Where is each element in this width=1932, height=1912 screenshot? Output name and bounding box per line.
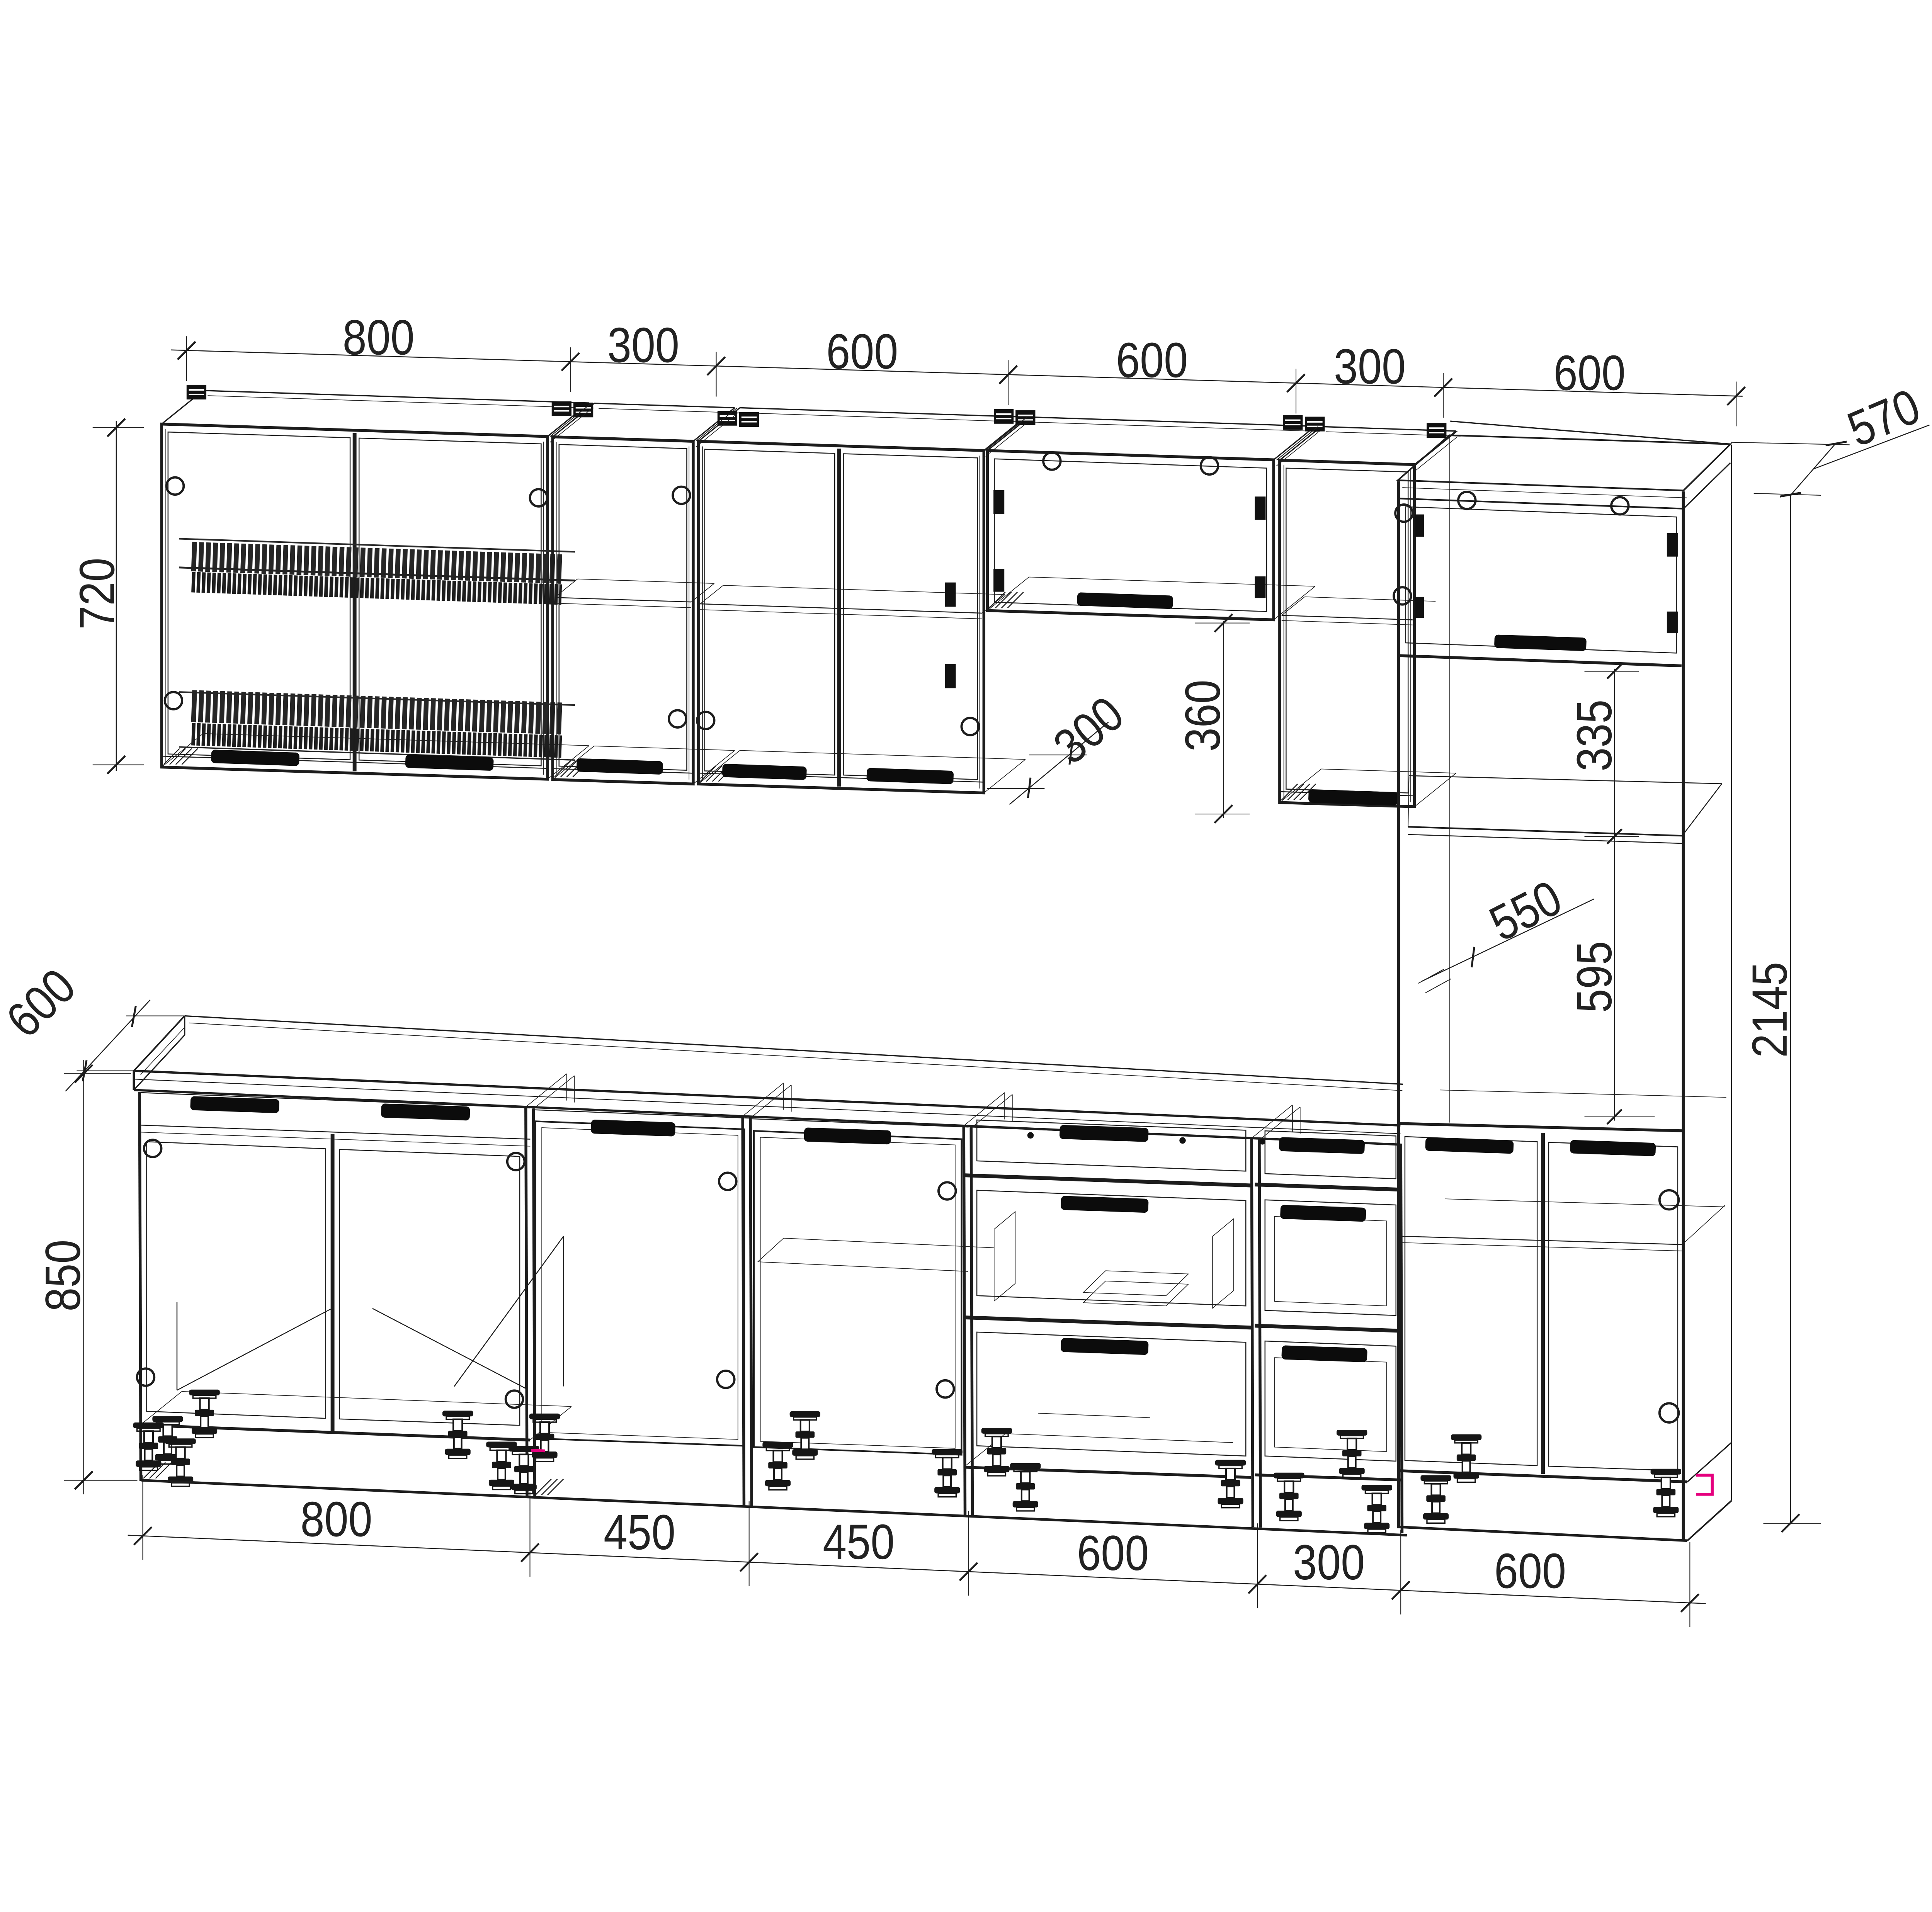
svg-text:800: 800 — [343, 310, 415, 365]
svg-text:600: 600 — [1494, 1543, 1566, 1599]
svg-text:800: 800 — [301, 1492, 372, 1547]
svg-text:450: 450 — [604, 1505, 675, 1560]
svg-text:2145: 2145 — [1742, 962, 1798, 1058]
svg-text:600: 600 — [1116, 333, 1188, 388]
svg-text:300: 300 — [1334, 339, 1406, 394]
svg-text:600: 600 — [1554, 345, 1626, 401]
svg-text:335: 335 — [1567, 700, 1622, 772]
svg-text:595: 595 — [1567, 941, 1622, 1013]
svg-text:600: 600 — [826, 324, 898, 379]
svg-text:600: 600 — [1077, 1526, 1149, 1581]
svg-text:720: 720 — [70, 558, 125, 630]
svg-text:850: 850 — [36, 1240, 91, 1312]
svg-text:300: 300 — [607, 318, 679, 373]
svg-text:450: 450 — [823, 1514, 895, 1570]
svg-text:360: 360 — [1175, 680, 1230, 751]
svg-text:300: 300 — [1293, 1535, 1365, 1590]
